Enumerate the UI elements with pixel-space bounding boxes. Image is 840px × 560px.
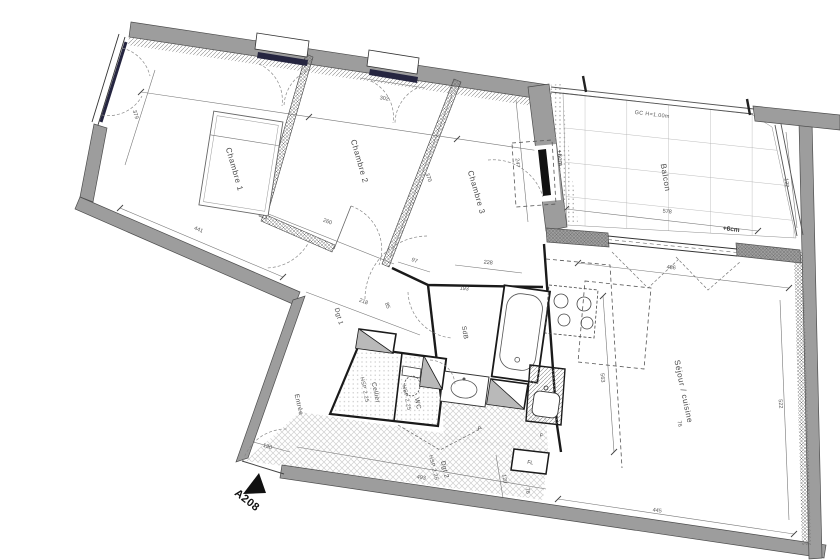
label-washer: FL [527, 460, 534, 467]
dim-sej-bottom: 445 [652, 507, 662, 514]
kitchen-sink [526, 365, 565, 425]
dim-win2: 302 [379, 95, 389, 102]
dim-dgt1-l: 218 [358, 298, 369, 307]
dim-ch1-d: 379 [131, 109, 140, 120]
wall-top-insulation [128, 37, 547, 108]
bay-window-center [608, 240, 737, 253]
hob [545, 285, 598, 338]
label-dgt1: Dgt 1 [333, 307, 345, 326]
dim-dgt1-w: 97 [410, 257, 418, 265]
dim-wm: 76 [523, 487, 530, 494]
wall-left-small [80, 124, 107, 202]
wall-sejour-top-left-hatch [546, 228, 609, 247]
dim-sej-left: 563 [599, 373, 606, 383]
partition-ch2-ch3 [382, 79, 461, 267]
dim-sdb-w: 228 [483, 259, 493, 266]
wall-sejour-top-right-hatch [736, 243, 801, 263]
window-left-swing [102, 48, 150, 116]
dim-ch2-w: 260 [322, 218, 333, 227]
window-left-frame [92, 34, 125, 125]
entry-arrow [243, 473, 266, 494]
label-chambre2: Chambre 2 [349, 138, 370, 184]
dim-wm-2: 76 [675, 420, 682, 427]
washbasin-tap [463, 378, 466, 381]
dim-balc-w: 578 [662, 208, 672, 215]
wall-bottom [280, 465, 826, 558]
chambre2-door-leaf [334, 206, 351, 249]
label-chambre3: Chambre 3 [466, 169, 487, 215]
label-entree: Entrée [293, 393, 305, 416]
dim-dgt2-w: 120 [500, 474, 507, 484]
bed [199, 111, 283, 216]
dim-ch2-d: 370 [423, 172, 432, 183]
dim-ch1-door: 85 [383, 302, 391, 310]
floor-plan-page: Chambre 1 Chambre 2 Chambre 3 Balcon Séj… [0, 0, 840, 560]
dim-ch3-d: 247 [514, 158, 521, 168]
floor-plan-svg: Chambre 1 Chambre 2 Chambre 3 Balcon Séj… [0, 0, 840, 560]
window-left-sill [101, 42, 126, 122]
dim-ch1-w: 441 [193, 226, 204, 235]
dim-sej-top: 486 [666, 264, 676, 271]
wall-sdb-north [392, 268, 543, 287]
dim-sdb-d: 193 [459, 285, 469, 292]
bay-window-opening-marks [612, 252, 740, 290]
chambre2-door-swing [351, 206, 382, 265]
label-sdb: SdB [460, 325, 469, 340]
washbasin-vanity [440, 371, 489, 407]
wall-top [129, 22, 549, 100]
dim-balc-d: 122 [783, 178, 790, 188]
dim-sej-right: 522 [777, 399, 784, 409]
chambre1-door-swing [266, 240, 310, 268]
label-sejour: Séjour / cuisine [672, 359, 694, 424]
entry-marker [243, 473, 266, 494]
kitchen-counter [546, 259, 622, 468]
